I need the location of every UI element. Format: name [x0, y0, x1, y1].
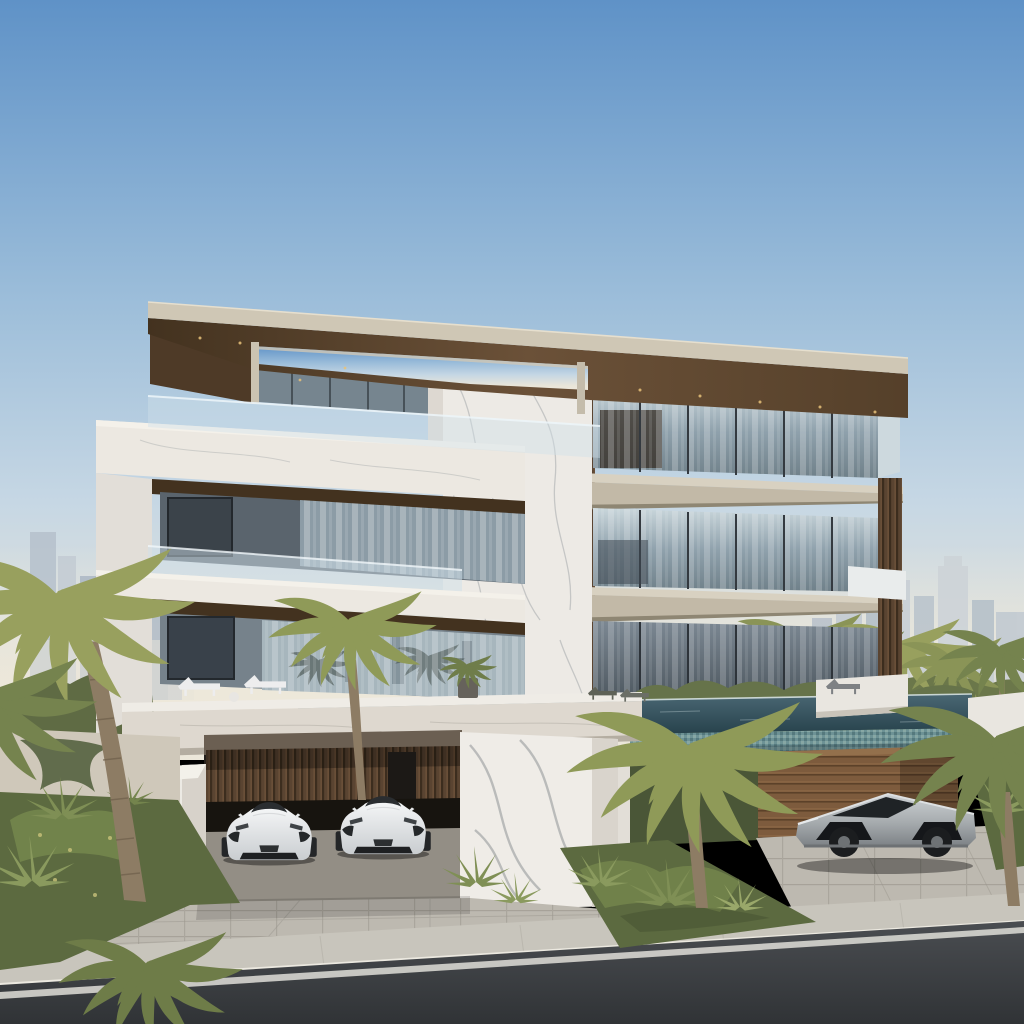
- glass-floor-2: [593, 508, 878, 592]
- villa-rendering: [0, 0, 1024, 1024]
- carport-door: [388, 752, 416, 802]
- white-screen-wall: [848, 566, 906, 600]
- scene-canvas: [0, 0, 1024, 1024]
- side-table: [229, 692, 239, 702]
- roof-post: [577, 362, 585, 414]
- roof-post: [251, 342, 259, 404]
